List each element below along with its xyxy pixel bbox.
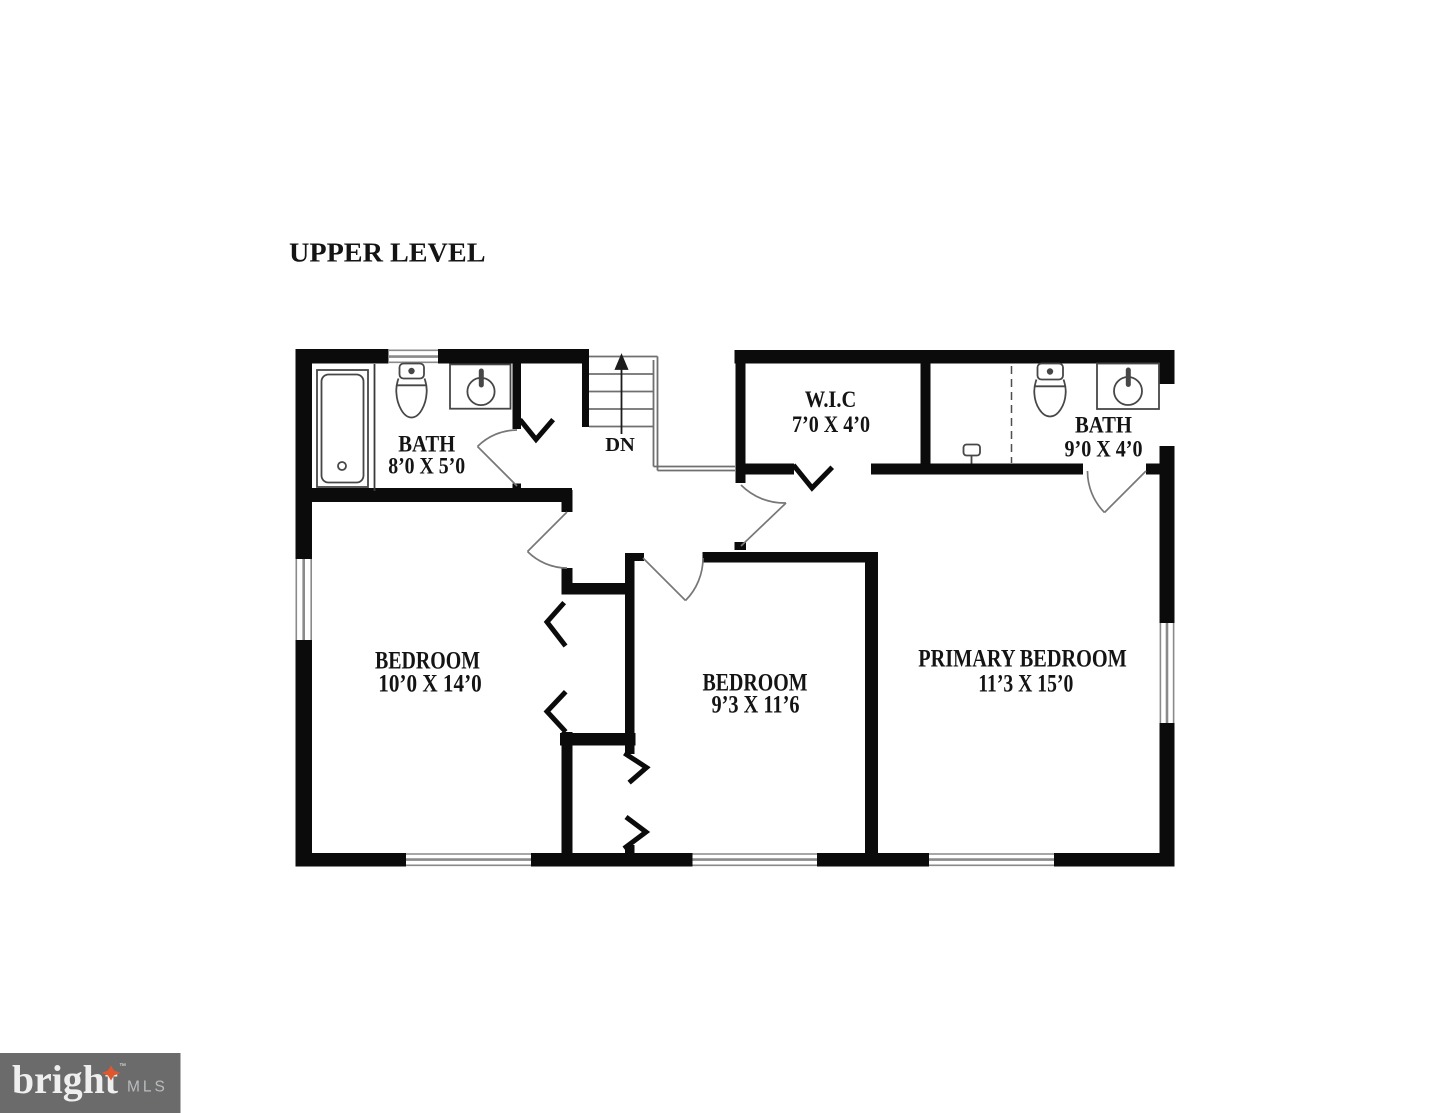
svg-text:MLS: MLS: [127, 1079, 168, 1096]
svg-text:UPPER LEVEL: UPPER LEVEL: [289, 236, 486, 267]
svg-text:DN: DN: [605, 434, 635, 456]
svg-text:9’3 X 11’6: 9’3 X 11’6: [712, 690, 800, 719]
svg-text:10’0 X 14’0: 10’0 X 14’0: [378, 669, 482, 698]
svg-text:bright: bright: [12, 1057, 119, 1102]
svg-text:8’0 X 5’0: 8’0 X 5’0: [388, 454, 465, 479]
svg-text:BATH: BATH: [1075, 412, 1132, 437]
svg-text:9’0 X 4’0: 9’0 X 4’0: [1065, 437, 1143, 462]
svg-text:™: ™: [119, 1063, 126, 1070]
svg-text:11’3 X 15’0: 11’3 X 15’0: [978, 669, 1073, 698]
svg-text:W.I.C: W.I.C: [805, 387, 857, 412]
svg-text:7’0 X 4’0: 7’0 X 4’0: [792, 412, 870, 437]
